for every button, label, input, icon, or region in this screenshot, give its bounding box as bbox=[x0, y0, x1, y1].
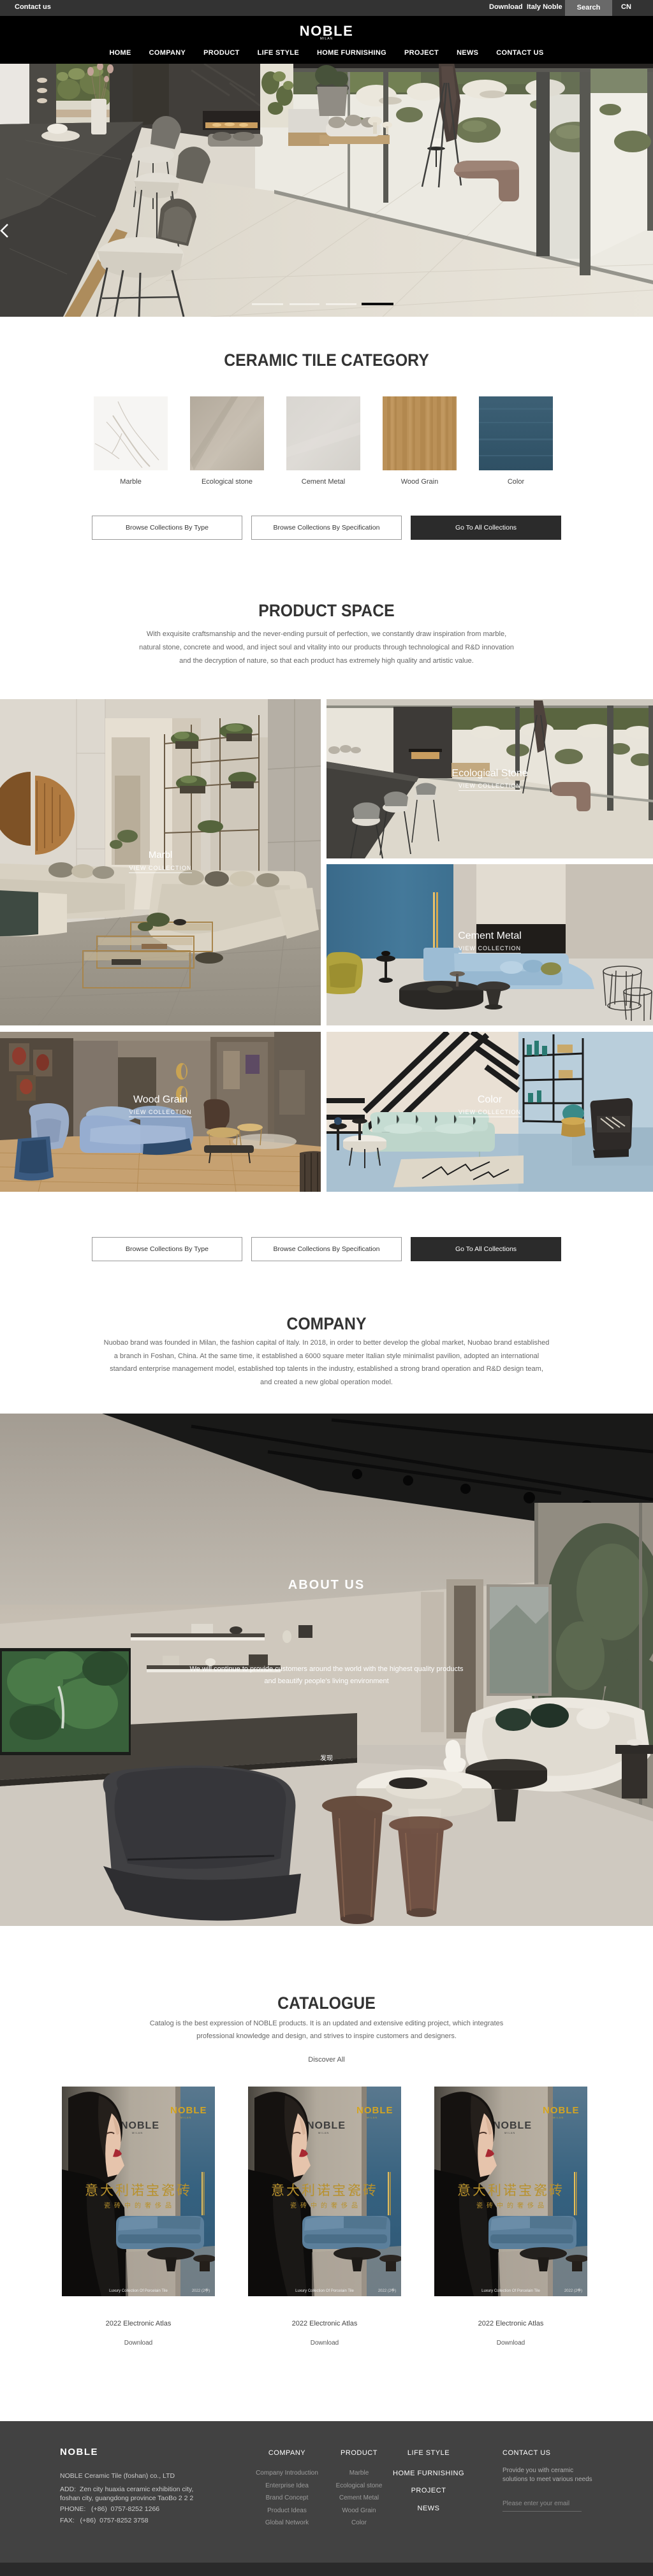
svg-text:NOBLE: NOBLE bbox=[121, 2120, 159, 2131]
svg-text:MILAN: MILAN bbox=[553, 2116, 564, 2119]
svg-text:MILAN: MILAN bbox=[504, 2131, 515, 2134]
svg-text:NOBLE: NOBLE bbox=[356, 2105, 393, 2116]
svg-text:意大利诺宝瓷砖: 意大利诺宝瓷砖 bbox=[85, 2183, 192, 2198]
svg-text:瓷砖中的奢侈品: 瓷砖中的奢侈品 bbox=[104, 2201, 175, 2210]
svg-text:2022 (2季): 2022 (2季) bbox=[564, 2288, 582, 2293]
svg-text:Luxury Collection Of Porcelain: Luxury Collection Of Porcelain Tile bbox=[295, 2289, 354, 2293]
svg-text:Luxury Collection Of Porcelain: Luxury Collection Of Porcelain Tile bbox=[109, 2289, 168, 2293]
svg-text:MILAN: MILAN bbox=[180, 2116, 191, 2119]
svg-text:MILAN: MILAN bbox=[318, 2131, 329, 2134]
svg-text:NOBLE: NOBLE bbox=[170, 2105, 207, 2116]
svg-text:瓷砖中的奢侈品: 瓷砖中的奢侈品 bbox=[476, 2201, 548, 2210]
svg-text:NOBLE: NOBLE bbox=[493, 2120, 532, 2131]
svg-text:MILAN: MILAN bbox=[367, 2116, 378, 2119]
svg-text:瓷砖中的奢侈品: 瓷砖中的奢侈品 bbox=[290, 2201, 362, 2210]
svg-text:意大利诺宝瓷砖: 意大利诺宝瓷砖 bbox=[271, 2183, 378, 2198]
svg-text:MILAN: MILAN bbox=[132, 2131, 143, 2134]
svg-text:2022 (2季): 2022 (2季) bbox=[378, 2288, 396, 2293]
svg-text:2022 (2季): 2022 (2季) bbox=[192, 2288, 210, 2293]
svg-text:NOBLE: NOBLE bbox=[307, 2120, 346, 2131]
svg-text:意大利诺宝瓷砖: 意大利诺宝瓷砖 bbox=[457, 2183, 564, 2198]
svg-text:Luxury Collection Of Porcelain: Luxury Collection Of Porcelain Tile bbox=[481, 2289, 540, 2293]
svg-text:NOBLE: NOBLE bbox=[543, 2105, 580, 2116]
